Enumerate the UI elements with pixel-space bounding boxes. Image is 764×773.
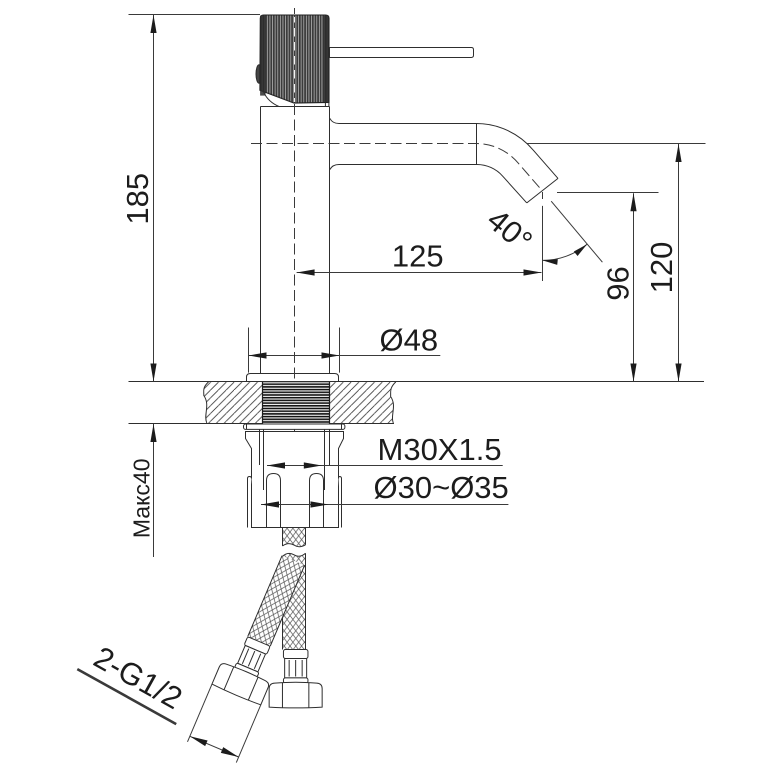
svg-text:Макс40: Макс40 bbox=[129, 458, 155, 538]
svg-text:96: 96 bbox=[601, 266, 636, 300]
svg-text:M30X1.5: M30X1.5 bbox=[378, 432, 502, 467]
svg-text:Ø30~Ø35: Ø30~Ø35 bbox=[374, 470, 509, 505]
svg-text:185: 185 bbox=[120, 173, 155, 225]
svg-text:120: 120 bbox=[644, 242, 679, 294]
svg-text:Ø48: Ø48 bbox=[380, 322, 439, 357]
svg-text:125: 125 bbox=[392, 239, 444, 274]
